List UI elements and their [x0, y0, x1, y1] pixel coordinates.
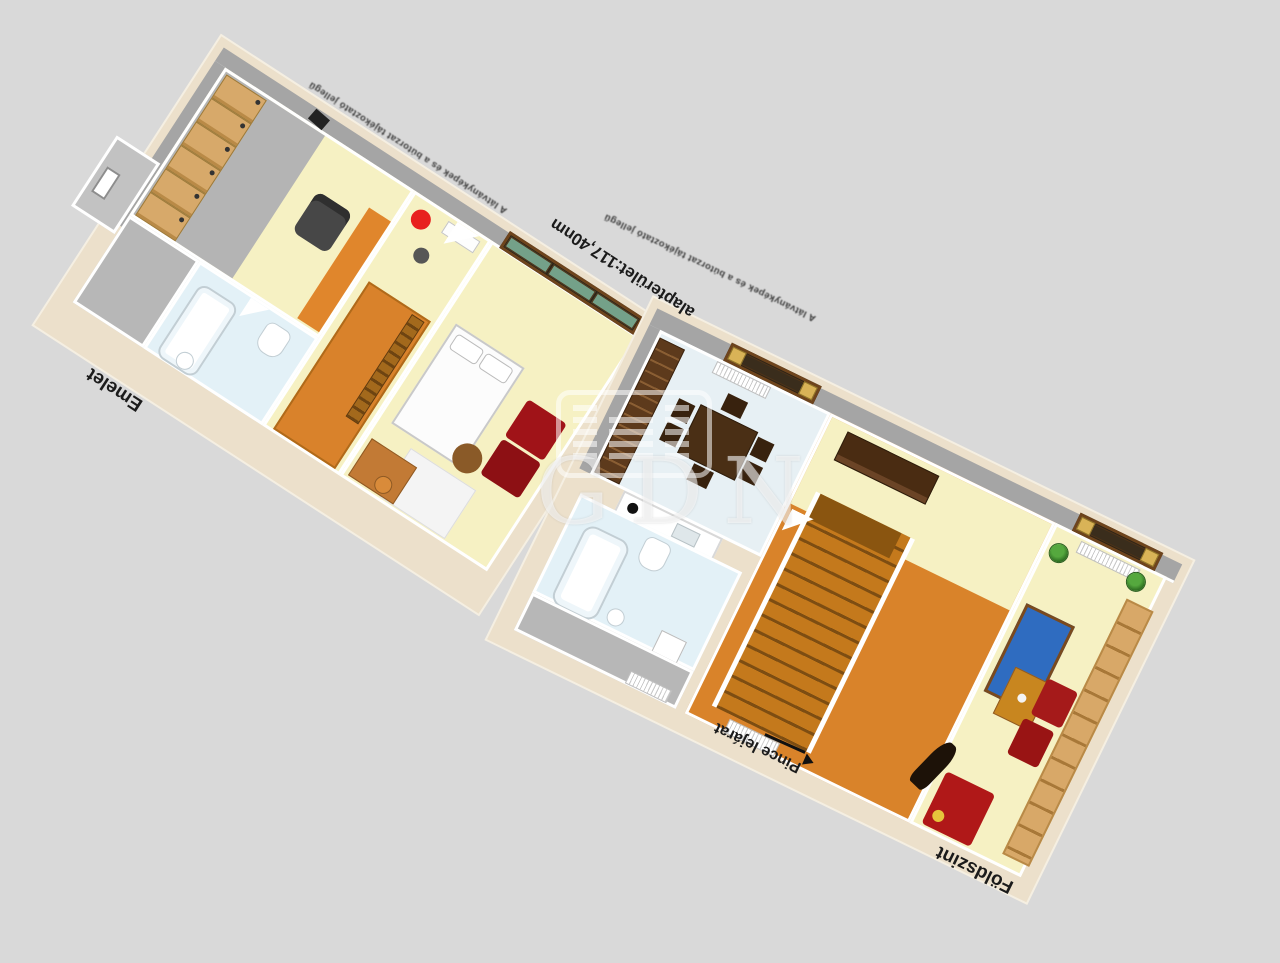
red-round-table — [407, 206, 435, 234]
gdn-watermark-text: GDN — [536, 438, 824, 545]
yellow-pillow — [930, 808, 946, 824]
door-swing — [239, 298, 269, 328]
floorplan-image: Emelet Földszint Pince lejárat alapterül… — [0, 0, 1280, 963]
cup — [1016, 692, 1028, 704]
picture-frame — [91, 166, 121, 200]
pillow — [448, 333, 485, 366]
radiator — [625, 670, 672, 703]
gray-stool — [410, 245, 432, 267]
toilet — [253, 320, 294, 362]
sink — [604, 605, 628, 629]
pillow — [478, 352, 515, 385]
potted-plant — [1047, 541, 1071, 565]
